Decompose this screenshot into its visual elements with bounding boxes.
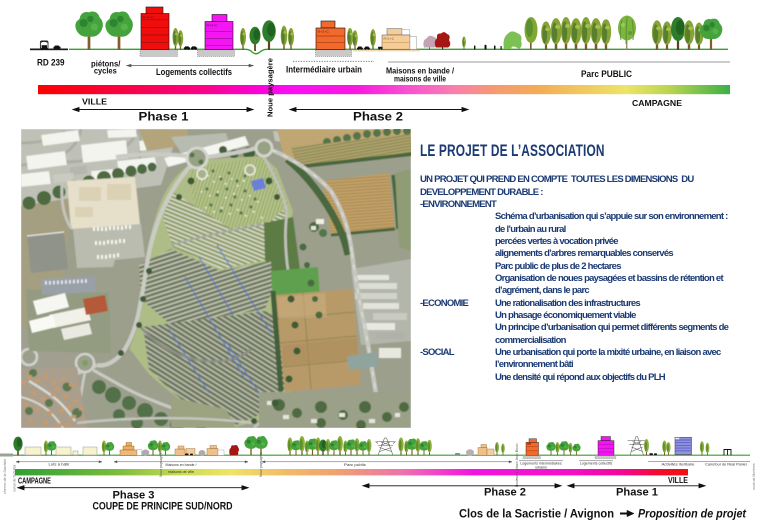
svg-text:Phase 1: Phase 1: [616, 487, 658, 499]
svg-text:CAMPAGNE: CAMPAGNE: [632, 98, 682, 108]
svg-text:Intermédiaire urbain: Intermédiaire urbain: [286, 65, 362, 76]
svg-text:R+3+C: R+3+C: [207, 24, 219, 28]
svg-text:VILLE: VILLE: [82, 97, 107, 107]
svg-text:Clos de la Sacristie / Avignon: Clos de la Sacristie / Avignon: [459, 508, 614, 520]
svg-text:Parc public: Parc public: [344, 463, 366, 467]
svg-text:Activités /tertiaire: Activités /tertiaire: [662, 462, 695, 466]
svg-text:Noue paysagère: Noue paysagère: [159, 452, 163, 477]
svg-text:cycles: cycles: [94, 67, 117, 76]
svg-text:maisons de ville: maisons de ville: [168, 470, 194, 474]
svg-text:Carrefour de Réal Panier: Carrefour de Réal Panier: [705, 462, 748, 466]
svg-text:VILLE: VILLE: [668, 476, 688, 485]
svg-text:R+1+C: R+1+C: [384, 37, 395, 41]
svg-text:maisons de ville: maisons de ville: [394, 74, 446, 84]
svg-text:Boulevard urbain Jean Bouin: Boulevard urbain Jean Bouin: [515, 443, 519, 487]
svg-text:COUPE DE PRINCIPE SUD/NORD: COUPE DE PRINCIPE SUD/NORD: [93, 500, 233, 512]
svg-text:Logements collectifs: Logements collectifs: [580, 462, 613, 466]
svg-text:CAMPAGNE: CAMPAGNE: [18, 476, 51, 485]
svg-text:Noue paysagère: Noue paysagère: [266, 58, 275, 117]
svg-text:Logements collectifs: Logements collectifs: [156, 67, 232, 78]
svg-text:Phase 2: Phase 2: [353, 112, 403, 124]
svg-text:Noue paysagère: Noue paysagère: [259, 452, 263, 477]
svg-text:urbains: urbains: [535, 465, 547, 469]
svg-text:Phase 2: Phase 2: [484, 487, 526, 499]
svg-text:R+3+C: R+3+C: [143, 15, 155, 19]
svg-text:chemin de la Sacristie: chemin de la Sacristie: [3, 459, 7, 494]
svg-text:RD 239: RD 239: [37, 58, 65, 68]
svg-text:Parc PUBLIC: Parc PUBLIC: [581, 69, 632, 80]
svg-text:canal de l'Hôpital: canal de l'Hôpital: [13, 465, 17, 492]
svg-text:R+2+C: R+2+C: [318, 30, 330, 34]
svg-text:Maisons en bande /: Maisons en bande /: [166, 463, 197, 467]
svg-text:Phase 1: Phase 1: [139, 112, 190, 124]
svg-text:route de Morières: route de Morières: [752, 463, 756, 490]
svg-text:Proposition de projet: Proposition de projet: [638, 508, 747, 520]
svg-text:Lots à bâtir: Lots à bâtir: [49, 463, 71, 467]
